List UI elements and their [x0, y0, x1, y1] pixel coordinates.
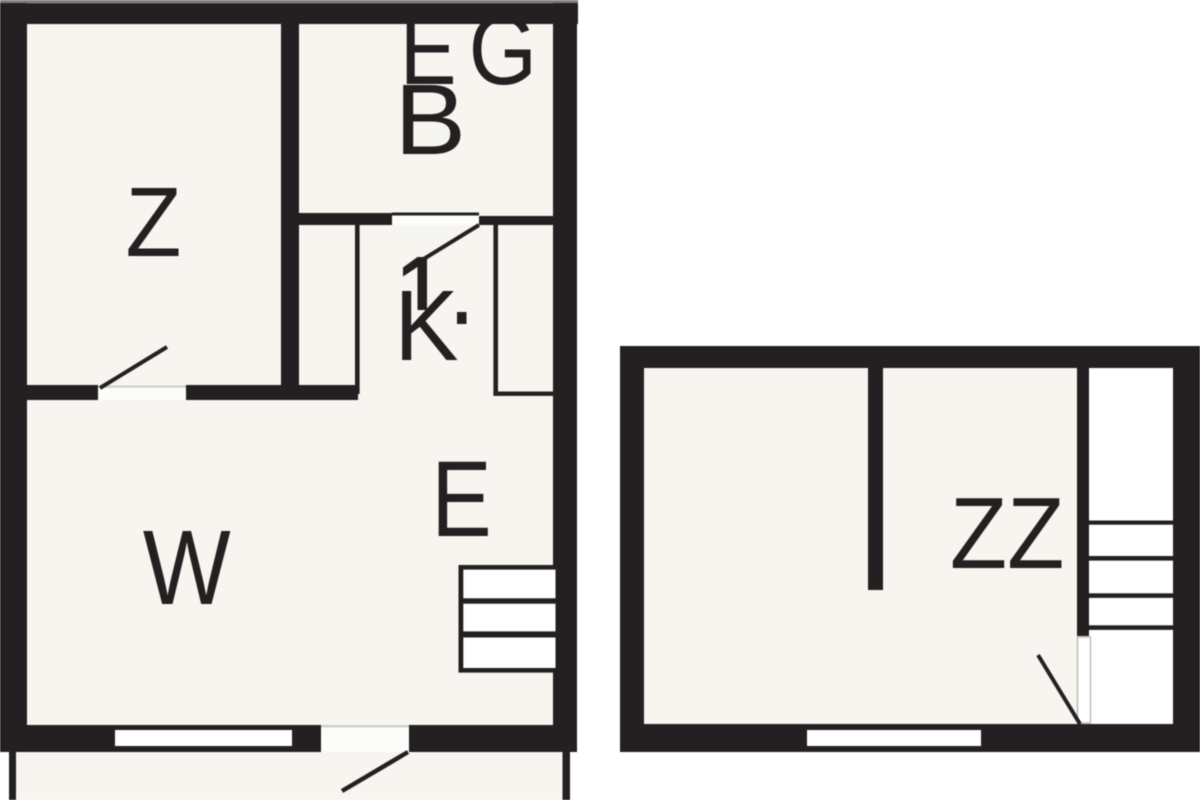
svg-text:B: B	[394, 63, 466, 175]
svg-text:E: E	[431, 440, 491, 560]
svg-text:W: W	[143, 509, 231, 627]
svg-text:K: K	[394, 269, 458, 381]
svg-text:ZZ: ZZ	[950, 477, 1065, 590]
svg-text:Z: Z	[126, 168, 182, 278]
